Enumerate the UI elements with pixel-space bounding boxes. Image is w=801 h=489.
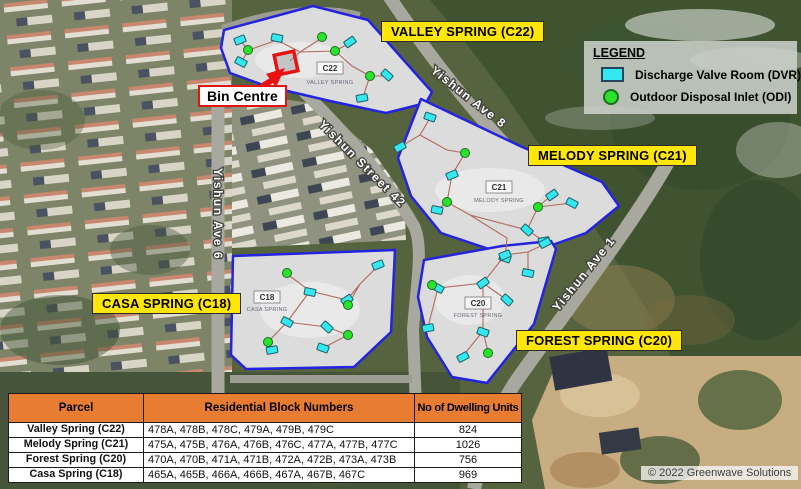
legend-item-label: Discharge Valve Room (DVR) — [635, 68, 801, 82]
odi-marker — [428, 281, 437, 290]
area-label-casa-spring: CASA SPRING (C18) — [92, 293, 241, 314]
table-row: Forest Spring (C20)470A, 470B, 471A, 471… — [9, 453, 522, 468]
slide-canvas: C22 VALLEY SPRING C21 MELODY SPRING C18 … — [0, 0, 801, 489]
header-units: No of Dwelling Units — [415, 394, 522, 423]
table-row: Melody Spring (C21)475A, 475B, 476A, 476… — [9, 438, 522, 453]
svg-text:CASA SPRING: CASA SPRING — [247, 307, 288, 313]
odi-marker — [366, 72, 375, 81]
legend-panel: LEGEND Discharge Valve Room (DVR) Outdoo… — [584, 41, 797, 114]
area-label-valley-spring: VALLEY SPRING (C22) — [381, 21, 544, 42]
odi-marker — [484, 349, 493, 358]
table-row: Casa Spring (C18)465A, 465B, 466A, 466B,… — [9, 468, 522, 483]
legend-title: LEGEND — [593, 46, 789, 60]
odi-marker — [443, 198, 452, 207]
cell-units: 969 — [415, 468, 522, 483]
odi-marker — [344, 301, 353, 310]
cell-parcel: Valley Spring (C22) — [9, 423, 144, 438]
svg-text:C22: C22 — [323, 64, 338, 73]
cell-parcel: Melody Spring (C21) — [9, 438, 144, 453]
odi-marker — [264, 338, 273, 347]
odi-marker — [283, 269, 292, 278]
cell-units: 824 — [415, 423, 522, 438]
cell-blocks: 470A, 470B, 471A, 471B, 472A, 472B, 473A… — [144, 453, 415, 468]
cell-blocks: 478A, 478B, 478C, 479A, 479B, 479C — [144, 423, 415, 438]
road-label-yishun-ave-6: Yishun Ave 6 — [211, 168, 225, 260]
dvr-marker — [422, 324, 434, 333]
cell-blocks: 465A, 465B, 466A, 466B, 467A, 467B, 467C — [144, 468, 415, 483]
dvr-marker — [356, 94, 368, 103]
svg-text:C18: C18 — [260, 293, 275, 302]
cell-blocks: 475A, 475B, 476A, 476B, 476C, 477A, 477B… — [144, 438, 415, 453]
table-row: Valley Spring (C22)478A, 478B, 478C, 479… — [9, 423, 522, 438]
legend-item-odi: Outdoor Disposal Inlet (ODI) — [601, 89, 789, 105]
cell-units: 756 — [415, 453, 522, 468]
dvr-swatch-icon — [601, 67, 624, 82]
odi-swatch-icon — [603, 89, 619, 105]
area-label-forest-spring: FOREST SPRING (C20) — [516, 330, 682, 351]
legend-item-dvr: Discharge Valve Room (DVR) — [601, 67, 789, 82]
odi-marker — [318, 33, 327, 42]
odi-marker — [461, 149, 470, 158]
header-parcel: Parcel — [9, 394, 144, 423]
parcel-data-table: Parcel Residential Block Numbers No of D… — [8, 393, 522, 483]
table-header-row: Parcel Residential Block Numbers No of D… — [9, 394, 522, 423]
cell-parcel: Forest Spring (C20) — [9, 453, 144, 468]
bin-centre-label: Bin Centre — [198, 85, 287, 107]
cell-units: 1026 — [415, 438, 522, 453]
odi-marker — [344, 331, 353, 340]
copyright-notice: © 2022 Greenwave Solutions — [641, 466, 798, 480]
legend-item-label: Outdoor Disposal Inlet (ODI) — [630, 90, 791, 104]
cell-parcel: Casa Spring (C18) — [9, 468, 144, 483]
odi-marker — [244, 46, 253, 55]
svg-text:MELODY SPRING: MELODY SPRING — [474, 198, 524, 204]
header-blocks: Residential Block Numbers — [144, 394, 415, 423]
svg-text:C20: C20 — [471, 299, 486, 308]
odi-marker — [331, 47, 340, 56]
area-label-melody-spring: MELODY SPRING (C21) — [528, 145, 697, 166]
svg-text:FOREST SPRING: FOREST SPRING — [454, 313, 503, 319]
svg-text:VALLEY SPRING: VALLEY SPRING — [307, 80, 354, 86]
odi-marker — [534, 203, 543, 212]
svg-text:C21: C21 — [492, 183, 507, 192]
